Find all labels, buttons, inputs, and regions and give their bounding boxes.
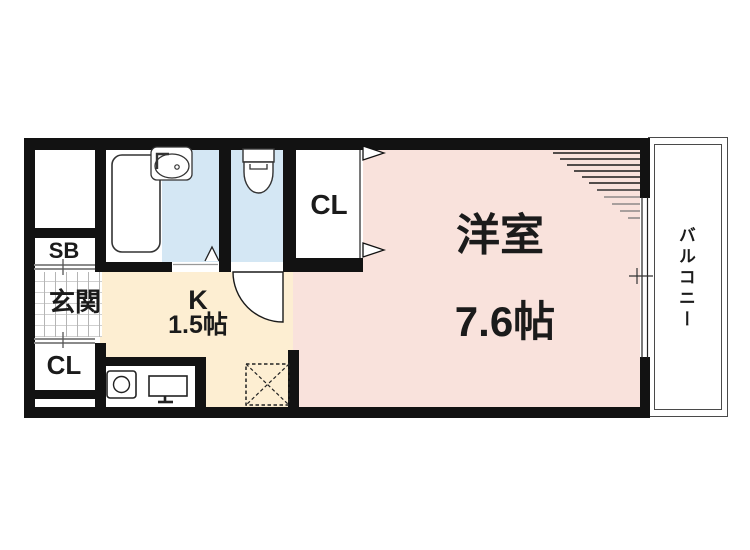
- refrigerator-space-icon: [246, 364, 289, 405]
- balcony-label: バルコニー: [676, 198, 694, 358]
- folding-door-icon: [205, 247, 219, 261]
- entrance-label: 玄関: [33, 289, 117, 316]
- closet-door-arrows-icon: [360, 146, 384, 258]
- sliding-window-icon: [629, 197, 653, 358]
- floor-plan: 洋室 7.6帖 K 1.5帖 玄関 SB CL CL バルコニー: [0, 0, 750, 550]
- western-room-size: 7.6帖: [420, 300, 590, 344]
- fixtures-layer: [0, 0, 750, 550]
- closet-main-label: CL: [298, 190, 360, 219]
- western-room-label: 洋室: [420, 213, 580, 259]
- closet-entrance-label: CL: [36, 352, 92, 379]
- stove-burner-icon: [107, 371, 136, 398]
- shoe-box-label: SB: [38, 239, 90, 262]
- kitchen-sink-icon: [149, 376, 187, 403]
- corner-hatch-lines: [553, 153, 640, 218]
- toilet-icon: [243, 149, 274, 193]
- kitchen-size: 1.5帖: [152, 312, 244, 338]
- wash-basin-icon: [151, 147, 192, 180]
